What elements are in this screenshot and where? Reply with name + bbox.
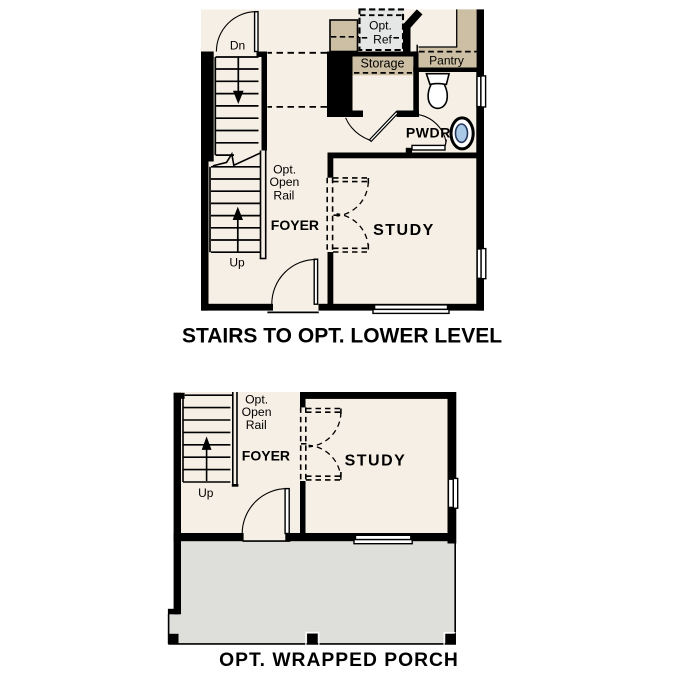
svg-text:FOYER: FOYER	[242, 447, 290, 463]
svg-text:Open: Open	[242, 405, 272, 419]
svg-text:Dn: Dn	[230, 38, 245, 52]
svg-text:Opt.: Opt.	[369, 18, 392, 32]
svg-text:STAIRS TO OPT. LOWER LEVEL: STAIRS TO OPT. LOWER LEVEL	[182, 324, 502, 347]
svg-text:Rail: Rail	[246, 418, 267, 432]
svg-text:Pantry: Pantry	[429, 53, 464, 67]
svg-text:PWDR: PWDR	[406, 125, 451, 141]
svg-text:STUDY: STUDY	[345, 453, 407, 470]
svg-text:Storage: Storage	[360, 56, 404, 70]
svg-text:Up: Up	[229, 256, 245, 270]
svg-text:Ref: Ref	[373, 32, 392, 46]
svg-text:FOYER: FOYER	[271, 217, 319, 233]
svg-text:STUDY: STUDY	[373, 222, 435, 239]
svg-text:Up: Up	[198, 486, 214, 500]
svg-text:Rail: Rail	[273, 189, 294, 203]
svg-text:Open: Open	[269, 175, 299, 189]
svg-text:OPT. WRAPPED PORCH: OPT. WRAPPED PORCH	[219, 650, 459, 671]
